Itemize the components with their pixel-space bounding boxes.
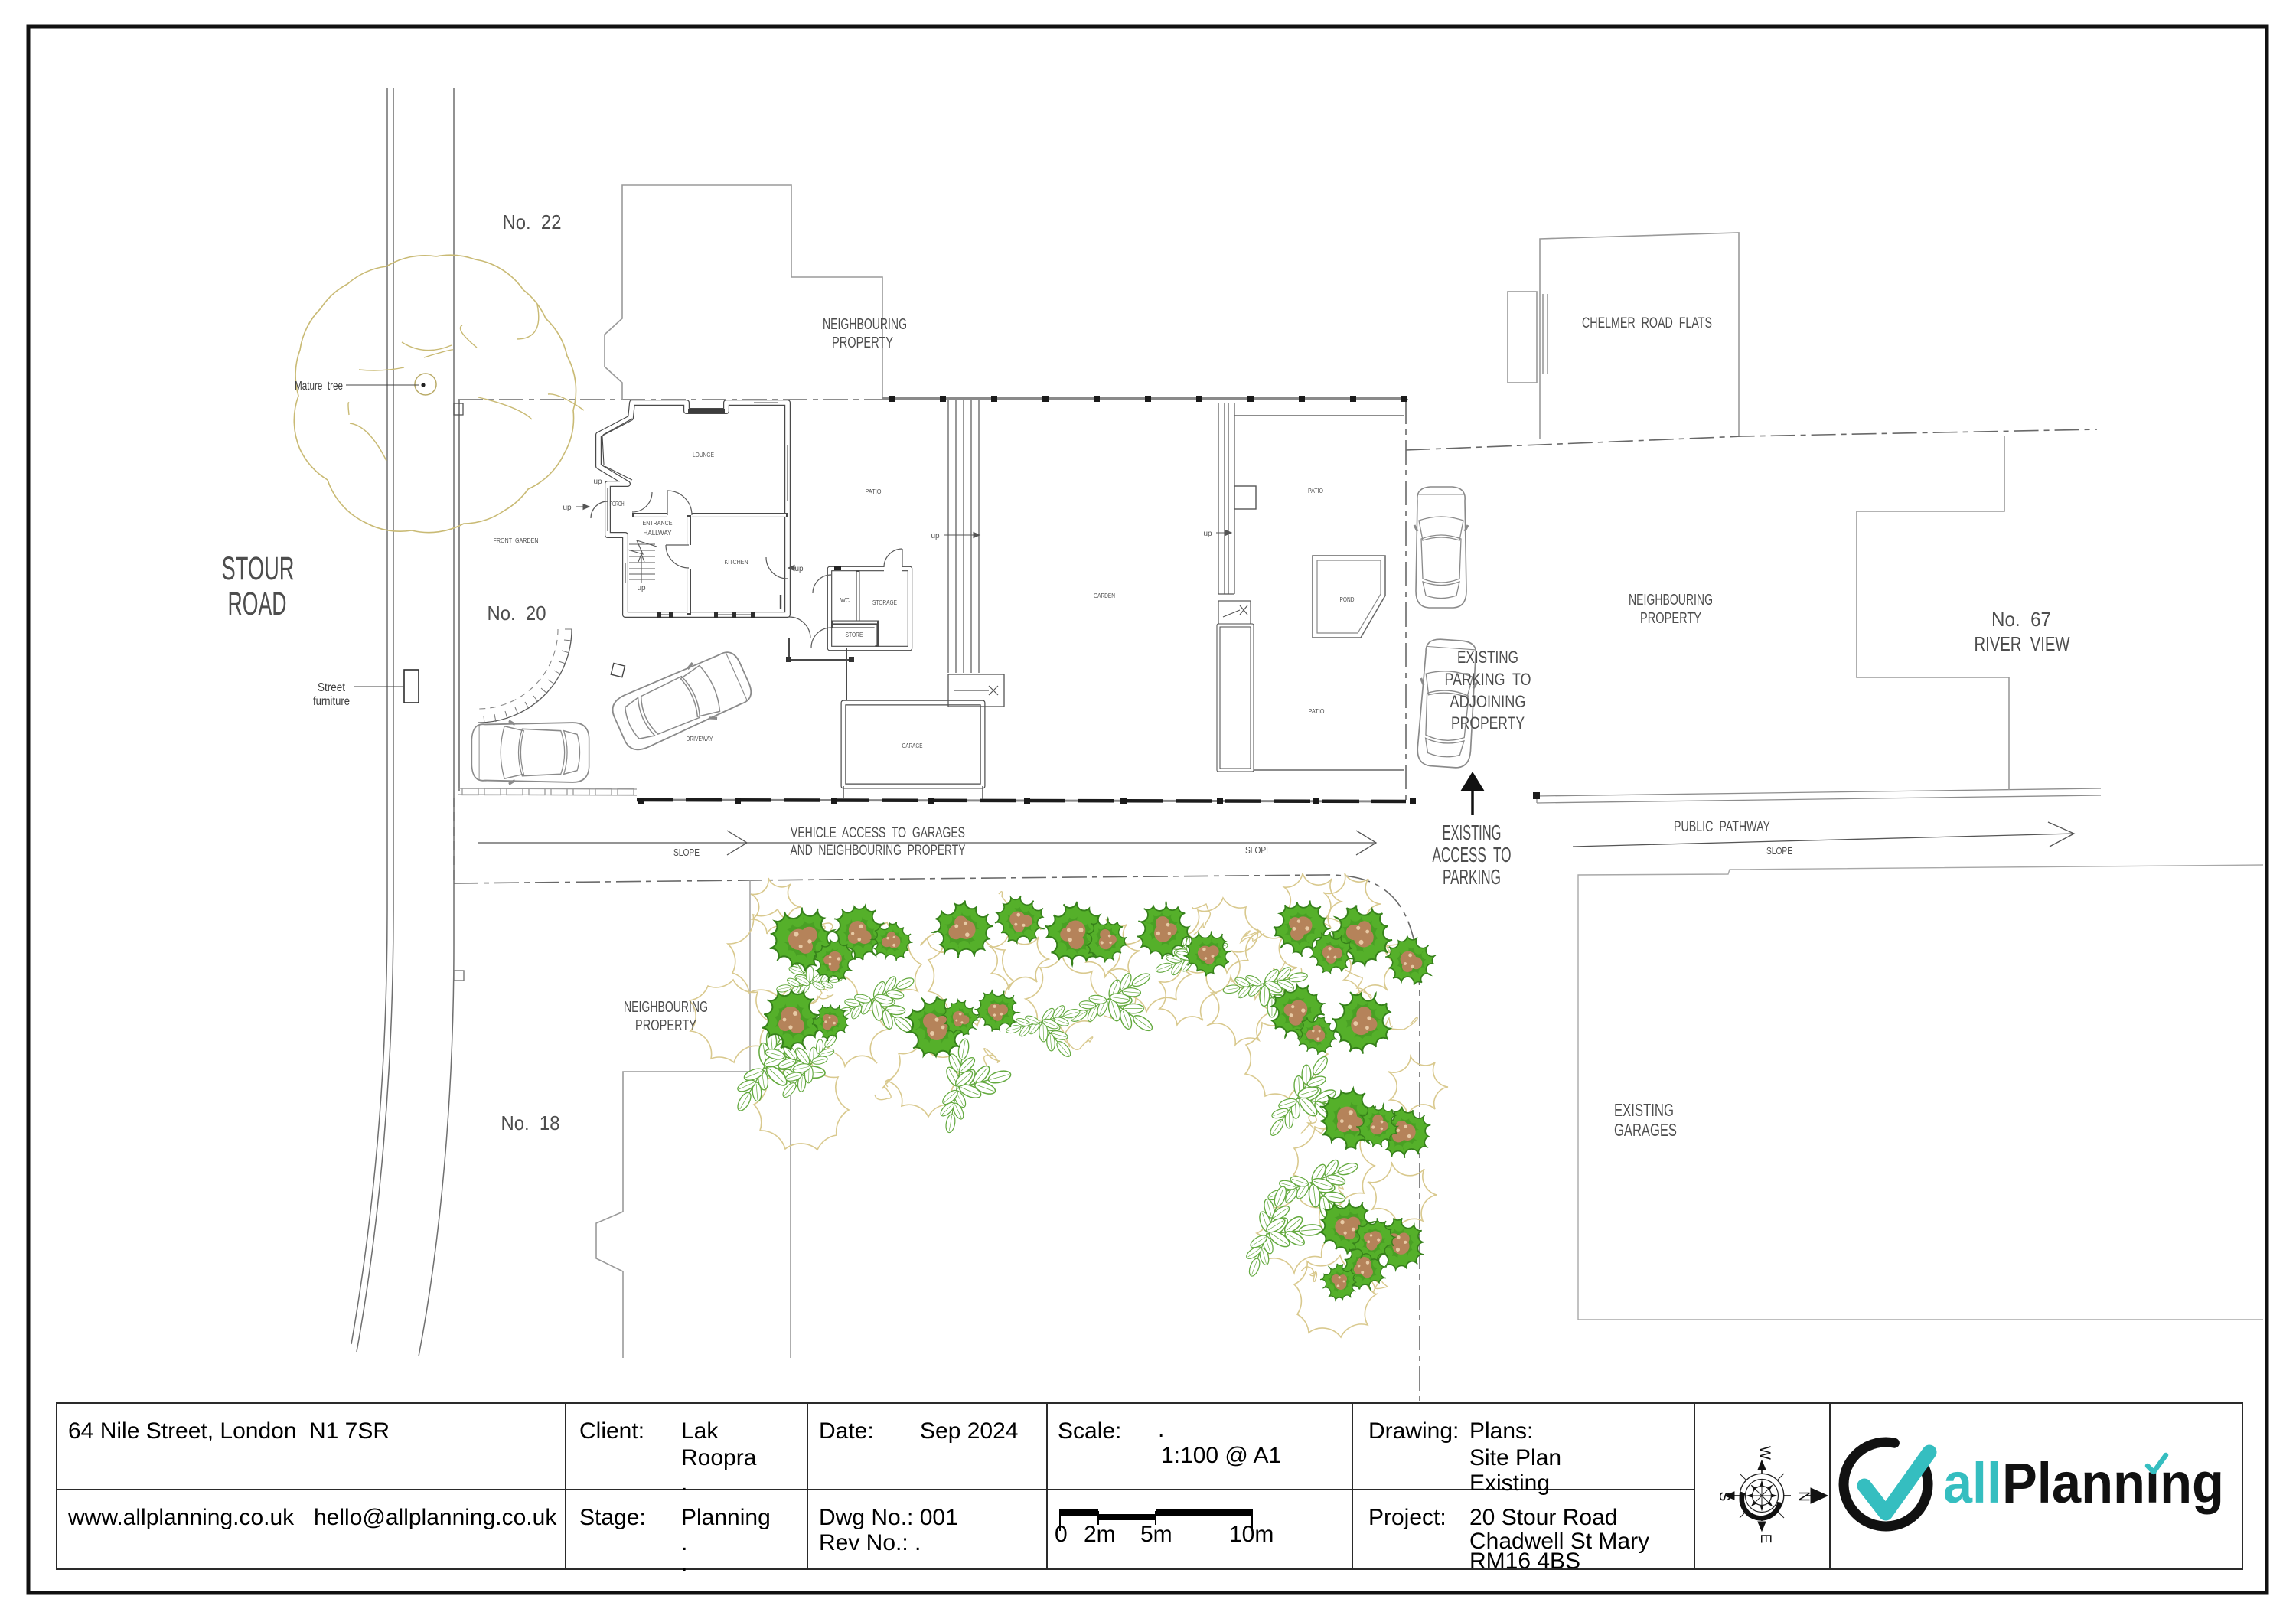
svg-text:Sep 2024: Sep 2024 — [920, 1418, 1018, 1444]
svg-text:up: up — [563, 504, 572, 512]
svg-text:No. 67: No. 67 — [1991, 608, 2051, 631]
svg-text:EXISTING: EXISTING — [1443, 821, 1502, 844]
svg-text:STOUR: STOUR — [222, 550, 295, 587]
svg-text:Lak: Lak — [681, 1418, 719, 1444]
svg-text:Street: Street — [318, 681, 346, 694]
svg-text:STORE: STORE — [846, 631, 863, 638]
svg-text:Project:: Project: — [1368, 1505, 1446, 1530]
svg-text:.: . — [1158, 1417, 1164, 1442]
svg-text:.: . — [681, 1551, 687, 1576]
svg-text:NEIGHBOURING: NEIGHBOURING — [823, 315, 907, 333]
svg-text:PROPERTY: PROPERTY — [832, 334, 893, 351]
svg-text:RM16 4BS: RM16 4BS — [1469, 1549, 1580, 1574]
svg-text:No. 20: No. 20 — [488, 602, 546, 625]
svg-text:www.allplanning.co.uk: www.allplanning.co.uk — [67, 1505, 295, 1530]
svg-text:PARKING TO: PARKING TO — [1445, 670, 1531, 689]
svg-text:VEHICLE ACCESS TO GARAGES: VEHICLE ACCESS TO GARAGES — [791, 825, 965, 841]
svg-text:Scale:: Scale: — [1058, 1418, 1121, 1444]
svg-text:EXISTING: EXISTING — [1614, 1100, 1674, 1120]
svg-text:POND: POND — [1340, 596, 1355, 603]
svg-text:0: 0 — [1055, 1522, 1068, 1547]
svg-text:Site Plan: Site Plan — [1469, 1445, 1561, 1470]
svg-text:SLOPE: SLOPE — [673, 847, 700, 858]
svg-text:5m: 5m — [1140, 1522, 1172, 1547]
svg-text:AND NEIGHBOURING PROPERTY: AND NEIGHBOURING PROPERTY — [791, 843, 966, 859]
svg-text:Date:: Date: — [819, 1418, 874, 1444]
svg-text:SLOPE: SLOPE — [1766, 845, 1792, 857]
svg-text:up: up — [593, 478, 602, 486]
svg-text:Roopra: Roopra — [681, 1445, 757, 1470]
svg-text:.: . — [681, 1470, 687, 1496]
svg-text:hello@allplanning.co.uk: hello@allplanning.co.uk — [314, 1505, 557, 1530]
svg-text:Plans:: Plans: — [1469, 1418, 1533, 1444]
svg-text:PUBLIC PATHWAY: PUBLIC PATHWAY — [1674, 818, 1770, 835]
svg-text:Mature tree: Mature tree — [295, 380, 343, 393]
svg-text:Drawing:: Drawing: — [1368, 1418, 1459, 1444]
svg-text:FRONT GARDEN: FRONT GARDEN — [494, 537, 539, 544]
svg-text:No. 22: No. 22 — [503, 211, 562, 233]
svg-text:ACCESS TO: ACCESS TO — [1433, 843, 1512, 866]
svg-text:PROPERTY: PROPERTY — [1640, 609, 1701, 627]
svg-text:GARAGES: GARAGES — [1614, 1120, 1677, 1140]
svg-text:GARAGE: GARAGE — [902, 742, 923, 749]
svg-text:GARDEN: GARDEN — [1094, 592, 1115, 599]
svg-text:Existing: Existing — [1469, 1470, 1550, 1496]
svg-text:W: W — [1756, 1446, 1773, 1460]
svg-text:up: up — [1203, 530, 1212, 538]
svg-text:furniture: furniture — [313, 695, 350, 708]
svg-text:Rev No.: .: Rev No.: . — [819, 1530, 921, 1555]
svg-text:up: up — [794, 565, 804, 573]
svg-text:2m: 2m — [1084, 1522, 1116, 1547]
svg-text:CHELMER ROAD FLATS: CHELMER ROAD FLATS — [1582, 315, 1712, 331]
svg-text:HALLWAY: HALLWAY — [644, 529, 672, 537]
svg-text:EXISTING: EXISTING — [1457, 648, 1518, 667]
svg-text:WC: WC — [840, 596, 850, 604]
svg-text:20 Stour Road: 20 Stour Road — [1469, 1505, 1617, 1530]
svg-text:No. 18: No. 18 — [501, 1111, 560, 1134]
svg-text:Dwg No.: 001: Dwg No.: 001 — [819, 1505, 958, 1530]
svg-text:STORAGE: STORAGE — [872, 599, 897, 606]
svg-text:S: S — [1716, 1492, 1732, 1502]
svg-text:PROPERTY: PROPERTY — [635, 1017, 696, 1034]
svg-text:Stage:: Stage: — [579, 1505, 646, 1530]
svg-text:PARKING: PARKING — [1443, 865, 1501, 889]
svg-text:PROPERTY: PROPERTY — [1451, 713, 1525, 733]
svg-text:up: up — [637, 584, 646, 592]
svg-text:SLOPE: SLOPE — [1245, 844, 1271, 856]
svg-text:N1 7SR: N1 7SR — [309, 1418, 390, 1444]
svg-text:LOUNGE: LOUNGE — [693, 451, 714, 459]
svg-text:up: up — [931, 532, 940, 540]
svg-text:ROAD: ROAD — [228, 586, 287, 622]
svg-text:NEIGHBOURING: NEIGHBOURING — [1629, 591, 1713, 609]
svg-text:all: all — [1943, 1451, 2001, 1515]
svg-text:ENTRANCE: ENTRANCE — [643, 519, 673, 527]
svg-text:Planning: Planning — [681, 1505, 771, 1530]
svg-text:1:100 @ A1: 1:100 @ A1 — [1161, 1443, 1281, 1468]
svg-text:10m: 10m — [1229, 1522, 1274, 1547]
svg-text:E: E — [1757, 1534, 1773, 1544]
svg-text:PATIO: PATIO — [866, 488, 882, 495]
svg-text:Planning: Planning — [2002, 1451, 2224, 1515]
svg-text:ADJOINING: ADJOINING — [1450, 692, 1526, 711]
svg-text:PATIO: PATIO — [1308, 487, 1323, 494]
svg-text:64 Nile Street, London: 64 Nile Street, London — [68, 1418, 297, 1444]
svg-text:KITCHEN: KITCHEN — [725, 558, 748, 566]
svg-text:PATIO: PATIO — [1309, 707, 1325, 715]
svg-text:RIVER VIEW: RIVER VIEW — [1975, 632, 2070, 655]
svg-text:N: N — [1795, 1491, 1812, 1502]
svg-text:Client:: Client: — [579, 1418, 644, 1444]
svg-text:DRIVEWAY: DRIVEWAY — [687, 735, 713, 742]
svg-text:NEIGHBOURING: NEIGHBOURING — [624, 998, 708, 1016]
svg-text:PORCH: PORCH — [610, 500, 625, 507]
